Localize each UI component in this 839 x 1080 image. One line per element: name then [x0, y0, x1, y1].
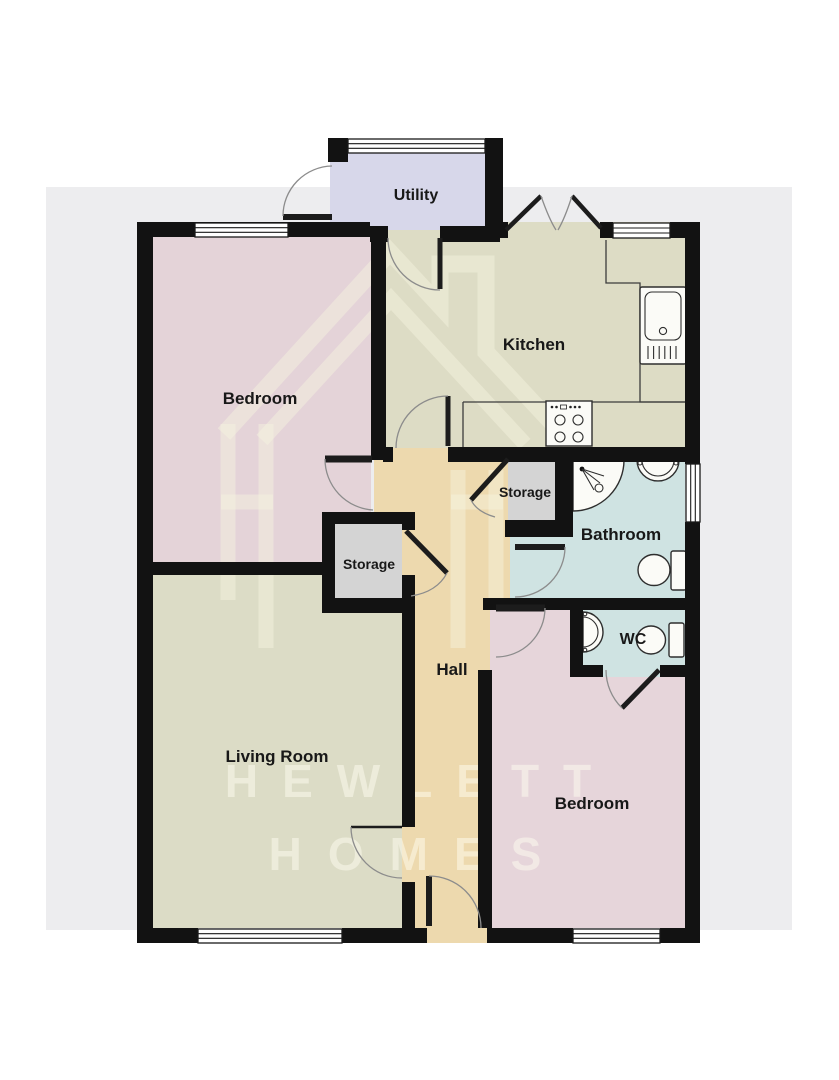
stove-icon	[546, 401, 592, 446]
room-hall-floor	[427, 928, 487, 943]
floorplan-canvas: HEWLETT HOMES	[0, 0, 839, 1080]
room-label-bedroom-top: Bedroom	[223, 389, 298, 408]
window-living-room	[198, 929, 342, 943]
room-label-hall: Hall	[436, 660, 467, 679]
window-bathroom	[686, 464, 700, 522]
room-label-storage-left: Storage	[343, 556, 395, 572]
room-label-bathroom: Bathroom	[581, 525, 661, 544]
room-label-utility: Utility	[394, 187, 439, 204]
room-label-wc: WC	[620, 631, 647, 648]
room-label-bedroom-bottom: Bedroom	[555, 794, 630, 813]
room-label-kitchen: Kitchen	[503, 335, 565, 354]
window-bedroom-bottom	[573, 929, 660, 943]
room-label-storage-right: Storage	[499, 484, 551, 500]
window-utility	[348, 139, 485, 153]
window-kitchen	[613, 223, 670, 238]
kitchen-sink	[640, 287, 686, 364]
watermark-text-line2: HOMES	[269, 828, 568, 880]
window-bedroom-top	[195, 223, 288, 237]
room-label-living-room: Living Room	[226, 747, 329, 766]
